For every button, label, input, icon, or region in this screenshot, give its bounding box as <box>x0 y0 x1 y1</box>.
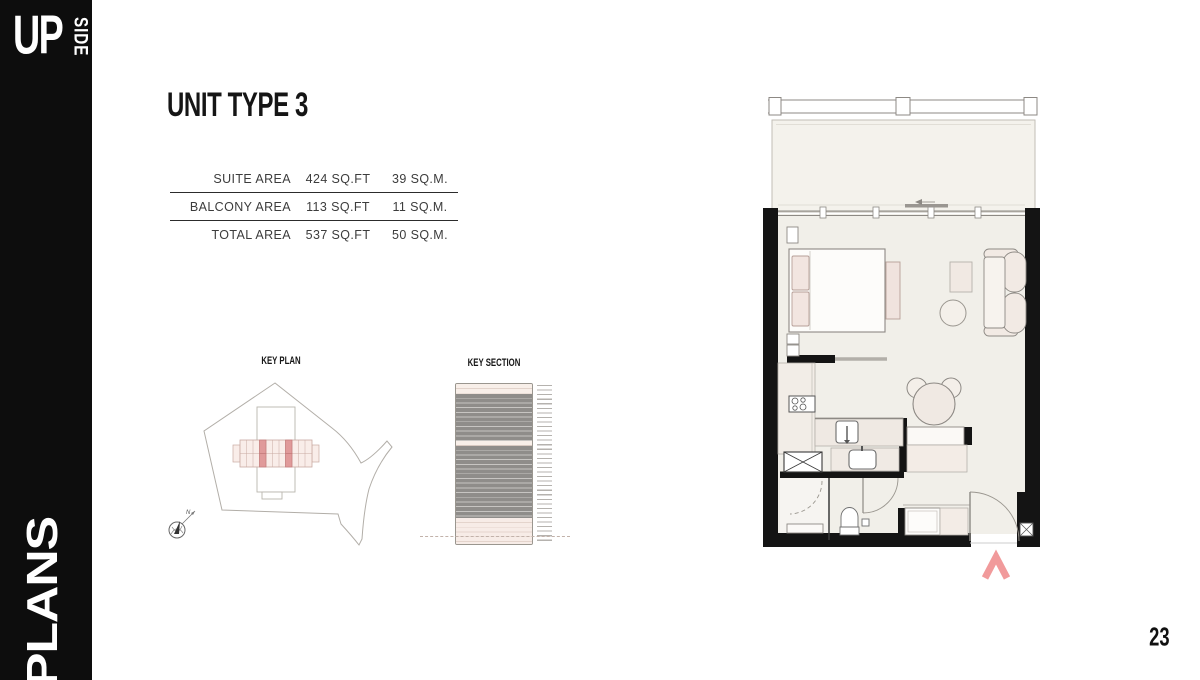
window-mullion <box>820 207 826 218</box>
wall-corner-entry <box>1017 492 1040 547</box>
area-row-sqft: 424 SQ.FT <box>294 172 382 186</box>
section-roof-floors <box>456 384 532 394</box>
entry-cabinet <box>905 508 940 535</box>
balcony-railing <box>768 98 1037 116</box>
north-label: N <box>186 510 191 516</box>
toilet <box>840 508 859 535</box>
north-compass-icon: N <box>169 510 195 538</box>
wall-left <box>763 208 778 547</box>
unit-strip-endcap <box>233 445 240 462</box>
key-plan-drawing: N <box>160 375 410 570</box>
entry-cabinet <box>940 508 968 535</box>
bed-bench <box>886 262 900 319</box>
bathroom-accessory <box>862 519 869 526</box>
window-mullion <box>873 207 879 218</box>
dining-table <box>913 383 955 425</box>
wall-cabinet <box>787 227 798 243</box>
closet <box>907 445 967 472</box>
unit-orientation-arrow <box>985 557 1007 578</box>
area-row-label: TOTAL AREA <box>170 228 294 242</box>
table-row: SUITE AREA 424 SQ.FT 39 SQ.M. <box>170 165 458 193</box>
pillow <box>792 256 809 290</box>
area-row-sqm: 50 SQ.M. <box>382 228 458 242</box>
area-row-label: BALCONY AREA <box>170 200 294 214</box>
brochure-page: { "sidebar": { "brand_top": "UP", "brand… <box>0 0 1200 680</box>
railing-post <box>1024 98 1037 116</box>
key-plan-title: KEY PLAN <box>242 355 320 367</box>
sidebar-section-label: PLANS <box>14 517 71 680</box>
section-floor-labels <box>537 385 552 543</box>
section-ground-line <box>420 536 570 537</box>
shower-tray <box>787 524 823 533</box>
page-title: UNIT TYPE 3 <box>167 86 308 125</box>
nightstand <box>787 334 799 344</box>
window-mullion <box>975 207 981 218</box>
key-section-title: KEY SECTION <box>463 357 525 369</box>
area-table: SUITE AREA 424 SQ.FT 39 SQ.M. BALCONY AR… <box>170 165 458 249</box>
area-row-sqm: 39 SQ.M. <box>382 172 458 186</box>
wall-right <box>1025 208 1040 494</box>
area-row-sqm: 11 SQ.M. <box>382 200 458 214</box>
kitchen-island <box>815 418 903 446</box>
pillow <box>792 292 809 326</box>
area-row-label: SUITE AREA <box>170 172 294 186</box>
railing-post <box>769 98 781 116</box>
section-upper-floors <box>456 394 532 441</box>
unit-strip-endcap <box>312 445 319 462</box>
railing-post <box>896 98 910 116</box>
side-table <box>950 262 972 292</box>
sofa-back-cushion <box>1003 293 1026 333</box>
coffee-table <box>940 300 966 326</box>
nightstand <box>787 345 799 356</box>
table-row: BALCONY AREA 113 SQ.FT 11 SQ.M. <box>170 193 458 221</box>
floor-plan-drawing <box>740 90 1060 590</box>
section-podium-floors <box>456 518 532 545</box>
balcony-floor <box>772 120 1035 212</box>
page-number: 23 <box>1150 622 1170 652</box>
electrical-box <box>1020 523 1033 536</box>
sofa-back-cushion <box>1003 252 1026 292</box>
window-mullion <box>928 207 934 218</box>
key-section-drawing <box>455 383 533 545</box>
section-lower-floors <box>456 446 532 518</box>
sliding-door-panel <box>905 204 948 208</box>
vanity-sink <box>849 450 876 469</box>
tower-footprint-tab <box>262 492 282 499</box>
brand-logo-side: SIDE <box>71 17 91 56</box>
service-shaft <box>784 452 822 472</box>
sofa-seat <box>984 257 1005 328</box>
brand-logo-up: UP <box>13 10 62 70</box>
sidebar: UP SIDE PLANS <box>0 0 92 680</box>
table-row: TOTAL AREA 537 SQ.FT 50 SQ.M. <box>170 221 458 249</box>
wall-closet-cap <box>964 427 972 445</box>
area-row-sqft: 113 SQ.FT <box>294 200 382 214</box>
brand-logo: UP SIDE <box>13 10 88 61</box>
area-row-sqft: 537 SQ.FT <box>294 228 382 242</box>
desk <box>907 427 964 445</box>
wall-cabinet-cap <box>898 508 905 537</box>
